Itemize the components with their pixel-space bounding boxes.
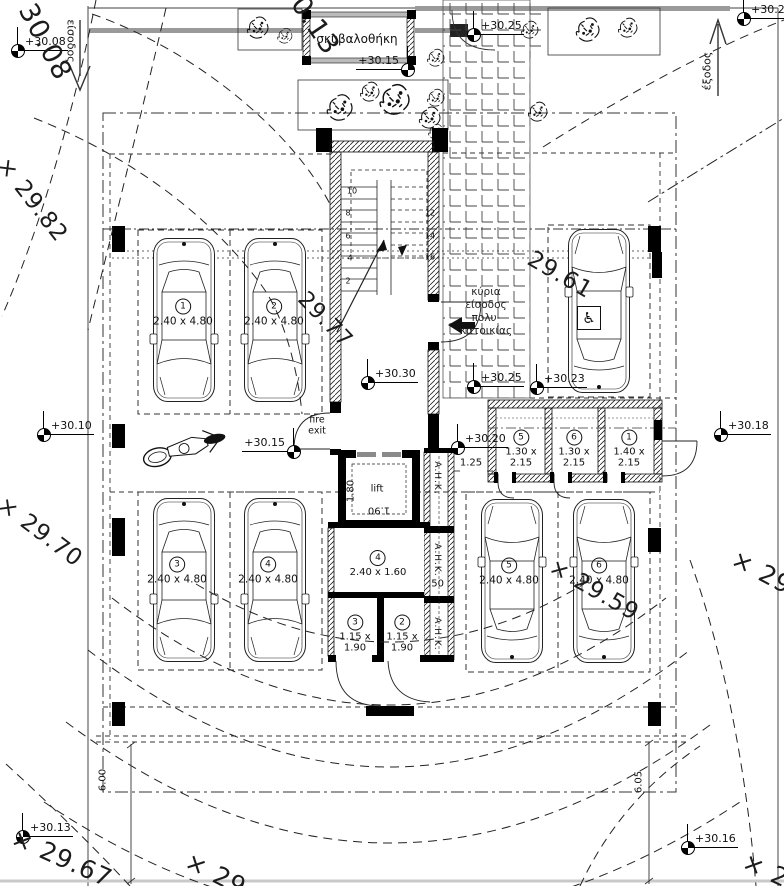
parking-space-label: 42.40 x 4.80 <box>238 557 298 586</box>
benchmark-icon <box>530 381 544 395</box>
elevation-value: +30.20 <box>751 3 784 16</box>
elevation-value: +30.15 <box>353 54 399 67</box>
floor-plan: σκυβαλοθήκη lift fire exit κύρια είσοδος… <box>0 0 784 886</box>
storage-room-dims: 1.30 x <box>505 447 536 458</box>
fire-exit-label-line2: exit <box>308 427 326 438</box>
storage-room-label: 21.15 x1.90 <box>386 615 417 654</box>
benchmark-icon <box>737 12 751 26</box>
benchmark-tick <box>43 411 44 428</box>
benchmark-tick <box>473 363 474 380</box>
storage-room-dims: 1.40 x <box>613 447 644 458</box>
benchmark-tick <box>407 46 408 63</box>
elevation-value: +30.18 <box>728 419 769 432</box>
stair-number: 6 <box>345 232 350 241</box>
parking-space-number: 6 <box>591 558 607 574</box>
dimension-label: 1.90 <box>368 505 390 516</box>
stair-number: 16 <box>425 253 435 262</box>
storage-room-label: 61.30 x2.15 <box>558 430 589 469</box>
main-entrance-label-line3: πολυ- <box>472 312 501 324</box>
benchmark-tick <box>743 0 744 12</box>
benchmark-baseline <box>48 434 94 435</box>
parking-space-label: 32.40 x 4.80 <box>147 557 207 586</box>
storage-room-label: 31.15 x1.90 <box>339 615 370 654</box>
storage-room-dims: 2.15 <box>613 458 644 469</box>
storage-room-label: 42.40 x 1.60 <box>350 550 407 578</box>
benchmark-baseline <box>356 69 402 70</box>
dimension-label: .50 <box>428 579 444 590</box>
stair-number: 12 <box>425 209 435 218</box>
plan-linework <box>0 0 784 886</box>
storage-room-number: 1 <box>621 430 637 446</box>
storage-room-number: 6 <box>566 430 582 446</box>
benchmark-tick <box>536 364 537 381</box>
elevation-value: +30.15 <box>239 436 285 449</box>
dimension-label: 6.00 <box>98 769 109 791</box>
benchmark-icon <box>451 441 465 455</box>
benchmark-icon <box>681 841 695 855</box>
elevation-value: +30.25 <box>481 19 522 32</box>
storage-room-number: 2 <box>394 615 410 631</box>
storage-room-number: 4 <box>370 550 386 566</box>
paved-walkway <box>443 0 545 398</box>
benchmark-baseline <box>692 847 738 848</box>
stair-number: 2 <box>345 277 350 286</box>
benchmark-baseline <box>372 382 418 383</box>
benchmark-baseline <box>478 386 524 387</box>
wheelchair-icon: ♿ <box>577 306 601 330</box>
storage-room-dims: 2.15 <box>558 458 589 469</box>
exit-label: έξοδος <box>702 52 715 91</box>
parking-space-number: 2 <box>266 299 282 315</box>
dimension-label: 1.80 <box>346 480 357 502</box>
benchmark-tick <box>687 824 688 841</box>
storage-room-dims: 1.90 <box>339 643 370 654</box>
stair-number: 8 <box>345 209 350 218</box>
parking-space-dims: 2.40 x 4.80 <box>479 575 539 587</box>
storage-room-dims: 1.90 <box>386 643 417 654</box>
storage-room-label: 11.40 x2.15 <box>613 430 644 469</box>
storage-room-dims: 2.15 <box>505 458 536 469</box>
stair-number: 4 <box>347 254 352 263</box>
storage-room-dims: 1.15 x <box>339 632 370 643</box>
ahk-label: Α.Η.Κ. <box>432 461 442 494</box>
benchmark-icon <box>287 445 301 459</box>
benchmark-tick <box>473 11 474 28</box>
parking-space-dims: 2.40 x 4.80 <box>238 574 298 586</box>
storage-room-dims: 1.30 x <box>558 447 589 458</box>
benchmark-baseline <box>725 434 771 435</box>
parking-space-label: 52.40 x 4.80 <box>479 558 539 587</box>
benchmark-baseline <box>748 18 784 19</box>
elevation-value: +30.30 <box>375 367 416 380</box>
elevation-value: +30.23 <box>544 372 585 385</box>
benchmark-baseline <box>242 451 288 452</box>
benchmark-baseline <box>478 34 524 35</box>
parking-space-number: 4 <box>260 557 276 573</box>
elevation-value: +30.16 <box>695 832 736 845</box>
benchmark-baseline <box>541 387 587 388</box>
elevation-value: +30.25 <box>481 371 522 384</box>
benchmark-icon <box>361 376 375 390</box>
benchmark-tick <box>293 428 294 445</box>
benchmark-tick <box>367 359 368 376</box>
benchmark-tick <box>17 27 18 44</box>
parking-space-label: 12.40 x 4.80 <box>153 299 213 328</box>
benchmark-tick <box>457 424 458 441</box>
parking-space-dims: 2.40 x 4.80 <box>244 316 304 328</box>
benchmark-icon <box>467 380 481 394</box>
elevation-value: +30.20 <box>465 432 506 445</box>
ahk-label: Α.Η.Κ. <box>432 617 442 650</box>
lift-label: lift <box>371 483 384 495</box>
benchmark-icon <box>37 428 51 442</box>
parking-space-number: 5 <box>501 558 517 574</box>
benchmark-icon <box>467 28 481 42</box>
parking-space-number: 1 <box>175 299 191 315</box>
storage-room-number: 3 <box>347 615 363 631</box>
parking-space-number: 3 <box>169 557 185 573</box>
storage-room-label: 51.30 x2.15 <box>505 430 536 469</box>
benchmark-baseline <box>462 447 508 448</box>
main-entrance-label-line1: κύρια <box>471 286 500 298</box>
main-entrance-label-line4: κατοικίας <box>460 325 512 337</box>
benchmark-icon <box>11 44 25 58</box>
benchmark-icon <box>401 63 415 77</box>
dimension-label: 6.05 <box>634 771 645 793</box>
benchmark-tick <box>720 411 721 428</box>
parking-space-dims: 2.40 x 4.80 <box>147 574 207 586</box>
stair-number: 14 <box>425 232 435 241</box>
dimension-label: 1.25 <box>460 458 482 469</box>
elevation-value: +30.10 <box>51 419 92 432</box>
stair-number: 10 <box>347 187 357 196</box>
benchmark-icon <box>714 428 728 442</box>
storage-room-dims: 2.40 x 1.60 <box>350 567 407 578</box>
ahk-label: Α.Η.Κ. <box>432 543 442 576</box>
motorcycle <box>140 425 228 469</box>
storage-room-number: 5 <box>513 430 529 446</box>
main-entrance-label-line2: είσοδος <box>465 299 506 311</box>
parking-space-dims: 2.40 x 4.80 <box>153 316 213 328</box>
storage-room-dims: 1.15 x <box>386 632 417 643</box>
